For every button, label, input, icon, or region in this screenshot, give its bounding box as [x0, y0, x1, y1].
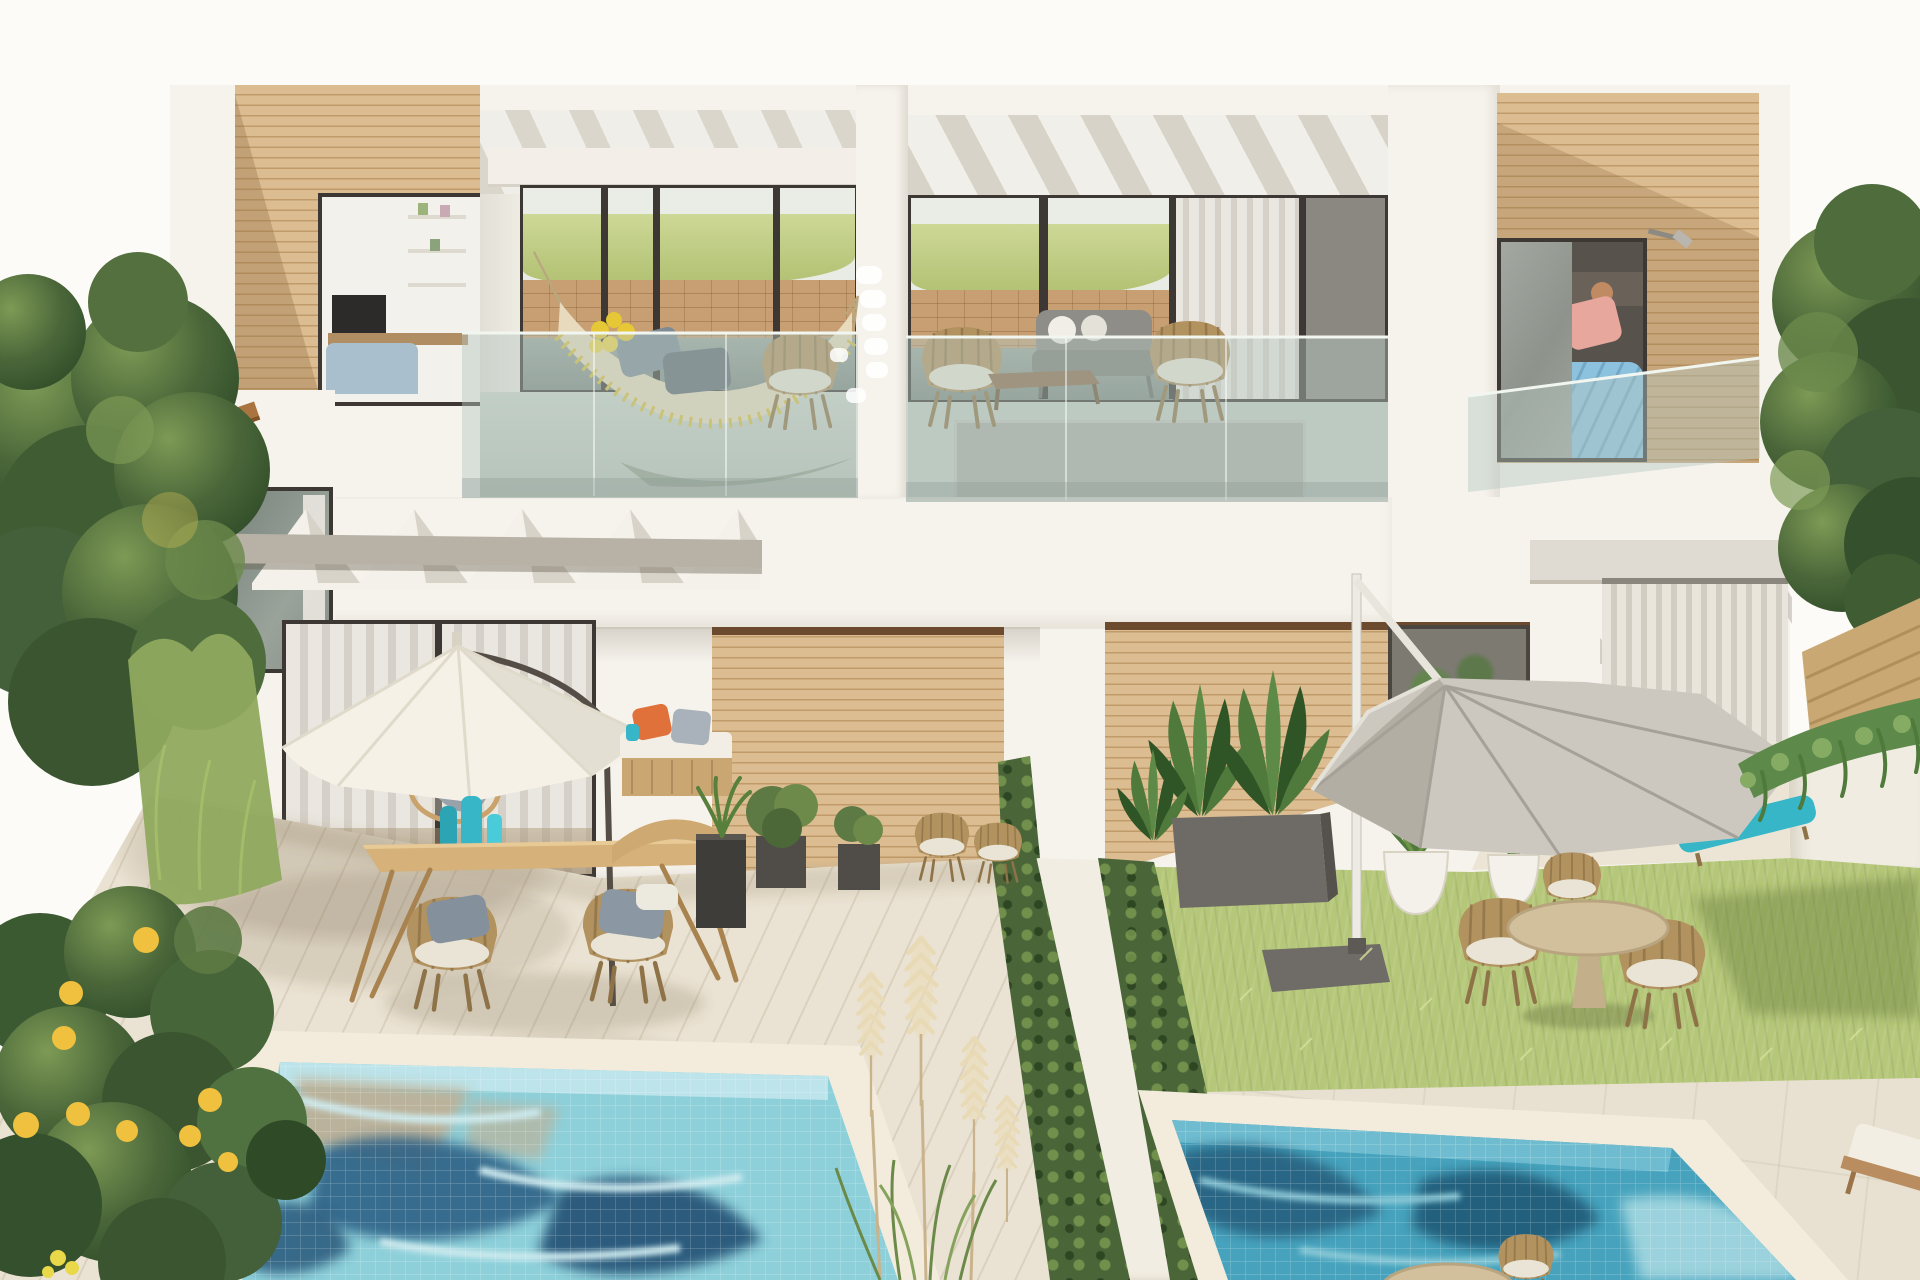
glass-balustrades — [462, 266, 1760, 502]
left-tree-cluster — [0, 252, 282, 904]
scene-detail-layer — [0, 0, 1920, 1280]
right-hedge — [1738, 184, 1920, 820]
deck-lounger-bottom-right — [1834, 1121, 1920, 1225]
planters-left — [696, 778, 1022, 928]
grass-shadow — [1692, 876, 1920, 1018]
big-planter — [1117, 670, 1338, 908]
villa-exterior-scene — [0, 0, 1920, 1280]
right-pool — [1138, 1090, 1848, 1280]
